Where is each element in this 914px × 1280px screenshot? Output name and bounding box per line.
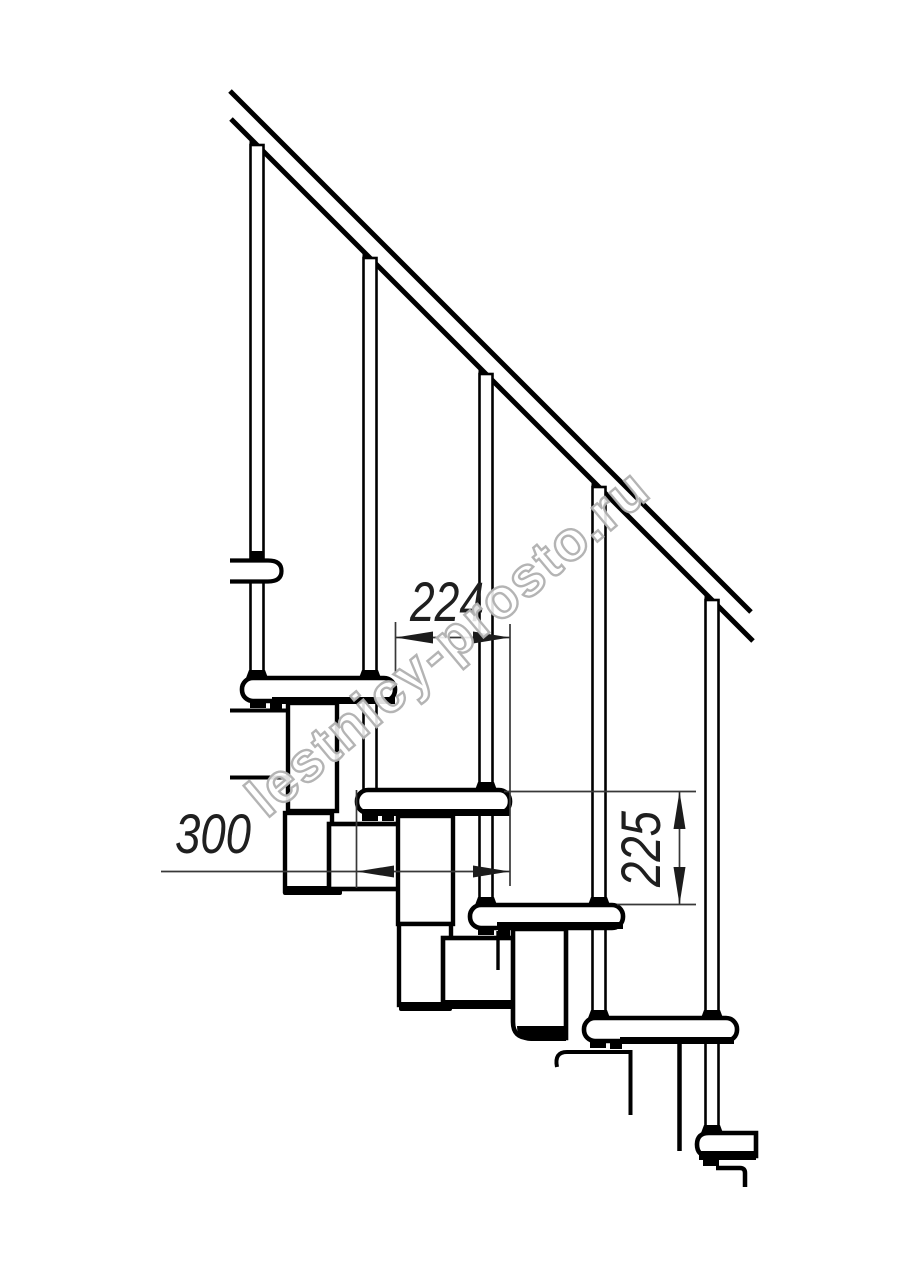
module-sleeve-1 bbox=[329, 824, 403, 889]
module-tube-2a bbox=[398, 816, 453, 924]
staircase-drawing: 224 300 225 lestnicy-prosto.ru bbox=[0, 0, 914, 1280]
collar-b1-t1 bbox=[246, 670, 268, 678]
bracket-body bbox=[230, 561, 282, 582]
collar-b4-t3 bbox=[588, 897, 610, 905]
tread-2-nut-b bbox=[382, 813, 394, 821]
baluster-5-post bbox=[706, 600, 719, 1133]
module-sleeve-2 bbox=[443, 938, 517, 1006]
baluster-4-post bbox=[593, 487, 606, 1018]
baluster-1-post bbox=[251, 145, 264, 678]
tread-5-nut-a bbox=[703, 1156, 719, 1166]
collar-b4-t4 bbox=[588, 1010, 610, 1018]
module-tube-3 bbox=[513, 929, 566, 1038]
collar-b5-t5 bbox=[701, 1125, 723, 1133]
tread-4-shadow bbox=[620, 1037, 734, 1044]
module-sleeve-2-base bbox=[443, 1000, 518, 1009]
collar-b3-t2 bbox=[475, 782, 497, 790]
tread-1-nut-a bbox=[250, 699, 266, 708]
tread-4-nut-b bbox=[610, 1041, 622, 1049]
tread-1-nut-b bbox=[270, 701, 282, 709]
tread-3-nut-b bbox=[498, 928, 510, 936]
module-tube-3-base bbox=[517, 1026, 566, 1041]
tread-4-nut-a bbox=[590, 1039, 606, 1048]
tread-3-nut-a bbox=[478, 926, 494, 935]
module-cut-line-1 bbox=[556, 1052, 629, 1067]
dim-300-label: 300 bbox=[175, 802, 251, 865]
dim-225-arrow-down bbox=[674, 867, 686, 905]
dim-225-arrow-up bbox=[674, 792, 686, 830]
collar-b5-t4 bbox=[701, 1010, 723, 1018]
rail-end-bracket bbox=[230, 551, 282, 582]
tread-5-cut-line bbox=[716, 1168, 745, 1187]
collar-b3-t3 bbox=[475, 897, 497, 905]
tread-2-nut-a bbox=[362, 811, 378, 821]
tread-3-shadow bbox=[497, 922, 623, 929]
dim-225-label: 225 bbox=[609, 810, 672, 888]
module-tube-1b bbox=[285, 813, 332, 891]
staircase-drawing-page: 224 300 225 lestnicy-prosto.ru bbox=[0, 0, 914, 1280]
